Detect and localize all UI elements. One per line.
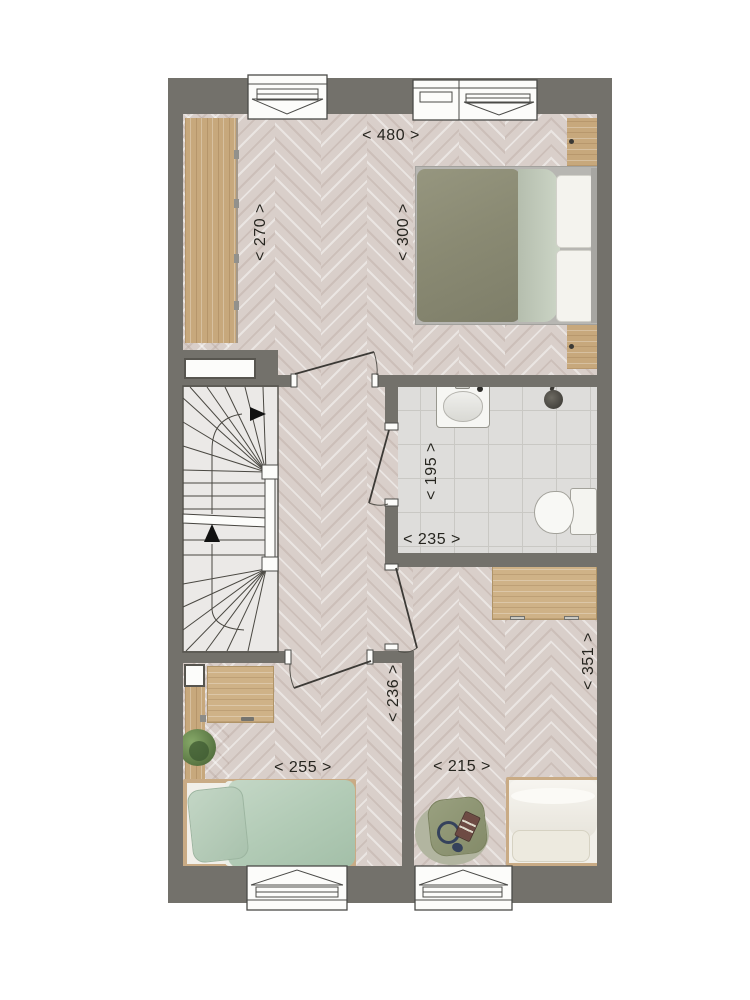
wall-bedroom-top	[376, 375, 597, 387]
dim-label-215: < 215 >	[417, 757, 507, 777]
dim-label-195: < 195 >	[422, 426, 442, 516]
wall-niche	[184, 664, 205, 687]
wardrobe-hinge	[234, 301, 239, 310]
double-bed-duvet-fold	[518, 169, 560, 322]
pillow-white	[512, 830, 590, 862]
wall-exterior-right	[597, 78, 612, 903]
wall-exterior-bottom	[168, 866, 612, 903]
dim-label-236: < 236 >	[384, 648, 404, 738]
dim-label-300: < 300 >	[394, 187, 414, 277]
single-bed-duvet	[228, 780, 355, 867]
dim-label-270: < 270 >	[251, 187, 271, 277]
wardrobe-hinge	[234, 150, 239, 159]
floor-plan: < 480 > < 270 > < 300 > < 195 > < 235 > …	[0, 0, 750, 1000]
wall-bathroom-west	[385, 387, 398, 424]
dim-label-255: < 255 >	[258, 758, 348, 778]
stairwell-floor	[183, 386, 278, 652]
desk	[492, 562, 597, 620]
shelf-bracket	[200, 715, 206, 722]
wall-exterior-left	[168, 78, 183, 903]
duvet-fold	[511, 788, 595, 804]
wall-bedroom-top	[278, 375, 293, 387]
pillow-green	[186, 785, 249, 863]
wall-niche	[184, 358, 256, 379]
pillow	[556, 250, 594, 322]
desk-handle	[510, 616, 525, 620]
double-bed-duvet	[417, 169, 520, 322]
wardrobe-hinge	[234, 199, 239, 208]
wardrobe-hinge	[234, 254, 239, 263]
dim-label-235: < 235 >	[387, 530, 477, 550]
lamp-knob	[569, 139, 574, 144]
wall-exterior-top	[168, 78, 612, 114]
desk-handle	[241, 717, 254, 721]
plant-leaves	[189, 741, 209, 761]
sink-basin	[443, 391, 483, 422]
desk-handle	[564, 616, 579, 620]
wall-bathroom-south	[385, 553, 597, 567]
dim-label-480: < 480 >	[346, 126, 436, 146]
shower-head-icon	[544, 390, 563, 409]
desk	[207, 666, 274, 723]
wall-bedroom-left-north	[183, 651, 287, 663]
toilet-bowl	[534, 491, 574, 534]
wardrobe	[185, 118, 238, 343]
toilet-tank	[570, 488, 597, 535]
dim-label-351: < 351 >	[579, 616, 599, 706]
lamp-knob	[569, 344, 574, 349]
pillow	[556, 175, 594, 248]
